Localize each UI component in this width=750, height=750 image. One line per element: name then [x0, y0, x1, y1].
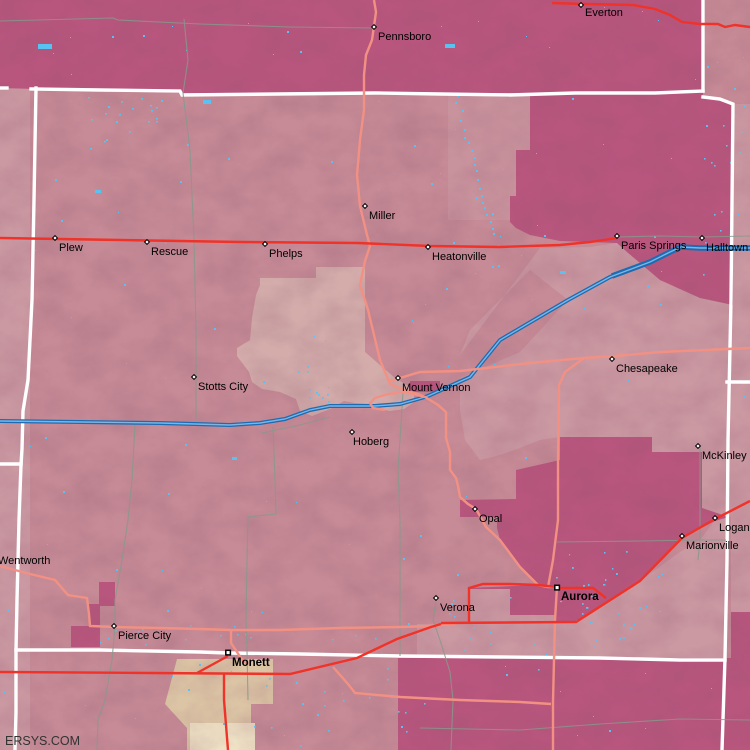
- svg-text:Marionville: Marionville: [686, 540, 739, 552]
- svg-text:ERSYS.COM: ERSYS.COM: [5, 734, 80, 748]
- svg-text:Wentworth: Wentworth: [0, 555, 50, 567]
- svg-text:Miller: Miller: [369, 210, 396, 222]
- svg-text:Pennsboro: Pennsboro: [378, 31, 431, 43]
- svg-text:Everton: Everton: [585, 7, 623, 19]
- svg-text:Paris Springs: Paris Springs: [621, 240, 687, 252]
- svg-text:Heatonville: Heatonville: [432, 251, 486, 263]
- svg-text:Halltown: Halltown: [706, 242, 748, 254]
- svg-text:Aurora: Aurora: [561, 591, 599, 603]
- svg-text:Logan: Logan: [719, 522, 750, 534]
- svg-text:Verona: Verona: [440, 602, 476, 614]
- svg-text:Monett: Monett: [232, 657, 270, 669]
- svg-text:Pierce City: Pierce City: [118, 630, 172, 642]
- svg-text:McKinley: McKinley: [702, 450, 747, 462]
- svg-text:Hoberg: Hoberg: [353, 436, 389, 448]
- svg-text:Stotts City: Stotts City: [198, 381, 249, 393]
- svg-text:Mount Vernon: Mount Vernon: [402, 382, 471, 394]
- svg-text:Chesapeake: Chesapeake: [616, 363, 678, 375]
- svg-text:Rescue: Rescue: [151, 246, 188, 258]
- svg-text:Opal: Opal: [479, 513, 502, 525]
- svg-text:Plew: Plew: [59, 242, 83, 254]
- svg-text:Phelps: Phelps: [269, 248, 303, 260]
